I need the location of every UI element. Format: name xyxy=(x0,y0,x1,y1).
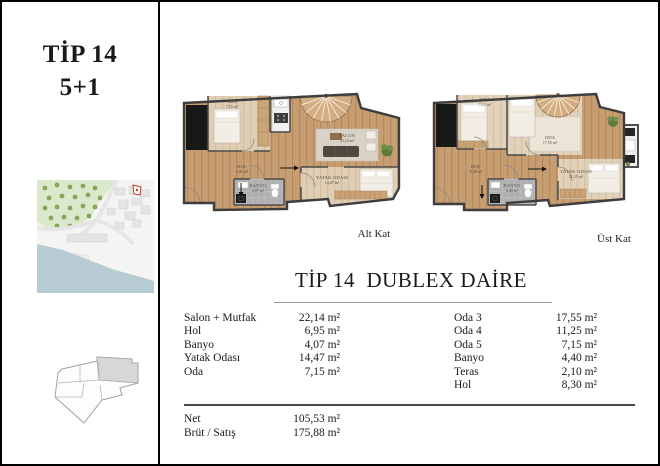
sink-icon xyxy=(238,182,248,188)
caption-ust-kat: Üst Kat xyxy=(554,233,660,245)
closet-slats xyxy=(335,191,387,199)
room-area: 4,07 m² xyxy=(305,339,340,352)
summary-label: Brüt / Satış xyxy=(184,426,236,440)
site-map xyxy=(37,180,154,293)
table-row: Banyo 4,07 m² xyxy=(184,339,340,352)
room-area: 6,95 m² xyxy=(305,325,340,338)
table-row: Salon + Mutfak 22,14 m² xyxy=(184,312,340,325)
table-row: Oda 4 11,25 m² xyxy=(454,325,597,338)
closet-slats xyxy=(560,189,586,198)
summary-label: Net xyxy=(184,412,201,426)
room-area: 11,25 m² xyxy=(556,325,597,338)
sofa xyxy=(323,146,359,157)
room-area: 7,15 m² xyxy=(562,339,597,352)
bed-small xyxy=(214,109,240,143)
table-row: Yatak Odası 14,47 m² xyxy=(184,352,340,365)
summary-row: Net 105,53 m² xyxy=(184,412,340,426)
page-title: TİP 14 DUBLEX DAİRE xyxy=(162,268,660,293)
table-row: Banyo 4,40 m² xyxy=(454,352,597,365)
bed-medium xyxy=(509,97,535,137)
table-row: Hol 6,95 m² xyxy=(184,325,340,338)
wardrobe xyxy=(258,96,269,146)
room-name: Hol xyxy=(454,379,471,392)
highlighted-unit xyxy=(97,357,138,383)
caption-alt-kat: Alt Kat xyxy=(314,228,434,240)
toilet-icon xyxy=(524,184,532,198)
room-name: Oda xyxy=(184,366,203,379)
table-row: Oda 7,15 m² xyxy=(184,366,340,379)
key-plan xyxy=(42,337,150,434)
sidebar: TİP 14 5+1 xyxy=(2,2,160,464)
title-divider xyxy=(274,302,552,303)
room-area: 17,55 m² xyxy=(556,312,597,325)
summary-divider xyxy=(184,404,635,406)
room-name: Teras xyxy=(454,366,479,379)
floor-plan-alt-kat: ODA 7,15 m² SALON 22,14 m² HOL 6,95 m² B… xyxy=(180,89,402,217)
summary-value: 175,88 m² xyxy=(293,426,340,440)
washer-icon xyxy=(490,194,500,203)
room-name: Oda 5 xyxy=(454,339,482,352)
room-area: 7,15 m² xyxy=(305,366,340,379)
main-content: ODA 7,15 m² SALON 22,14 m² HOL 6,95 m² B… xyxy=(162,2,660,464)
room-name: Salon + Mutfak xyxy=(184,312,256,325)
table-row: Hol 8,30 m² xyxy=(454,379,597,392)
room-area: 22,14 m² xyxy=(299,312,340,325)
room-name: Yatak Odası xyxy=(184,352,240,365)
summary-value: 105,53 m² xyxy=(293,412,340,426)
stove-icon xyxy=(274,113,288,123)
sink-icon xyxy=(491,182,500,188)
kitchen-counter xyxy=(272,96,290,132)
table-row: Oda 3 17,55 m² xyxy=(454,312,597,325)
room-area: 14,47 m² xyxy=(299,352,340,365)
unit-type: TİP 14 xyxy=(2,38,158,71)
brochure-page: TİP 14 5+1 xyxy=(0,0,660,466)
room-area: 4,40 m² xyxy=(562,352,597,365)
bedroom2-rug xyxy=(530,117,580,151)
summary-table: Net 105,53 m² Brüt / Satış 175,88 m² xyxy=(184,412,340,440)
room-name: Oda 4 xyxy=(454,325,482,338)
bed-master xyxy=(588,163,620,193)
elevator-shaft xyxy=(436,104,457,147)
room-area: 8,30 m² xyxy=(562,379,597,392)
unit-config: 5+1 xyxy=(2,71,158,104)
bed-small xyxy=(461,103,487,141)
room-name: Banyo xyxy=(184,339,214,352)
table-row: Oda 5 7,15 m² xyxy=(454,339,597,352)
area-table-left: Salon + Mutfak 22,14 m² Hol 6,95 m² Bany… xyxy=(184,312,340,379)
table-row: Teras 2,10 m² xyxy=(454,366,597,379)
summary-row: Brüt / Satış 175,88 m² xyxy=(184,426,340,440)
room-name: Oda 3 xyxy=(454,312,482,325)
floor-plan-ust-kat: ODA 7,15 m² ODA 17,55 m² HOL 8,30 m² BAN… xyxy=(430,89,640,217)
elevator-shaft xyxy=(186,105,208,150)
room-name: Banyo xyxy=(454,352,484,365)
unit-type-title: TİP 14 5+1 xyxy=(2,38,158,104)
toilet-icon xyxy=(271,184,279,198)
ac-unit-icon xyxy=(625,128,635,136)
site-boundary-marker xyxy=(133,185,141,195)
area-table-right: Oda 3 17,55 m² Oda 4 11,25 m² Oda 5 7,15… xyxy=(454,312,597,392)
laundry-icon xyxy=(625,155,635,163)
room-name: Hol xyxy=(184,325,201,338)
room-area: 2,10 m² xyxy=(562,366,597,379)
